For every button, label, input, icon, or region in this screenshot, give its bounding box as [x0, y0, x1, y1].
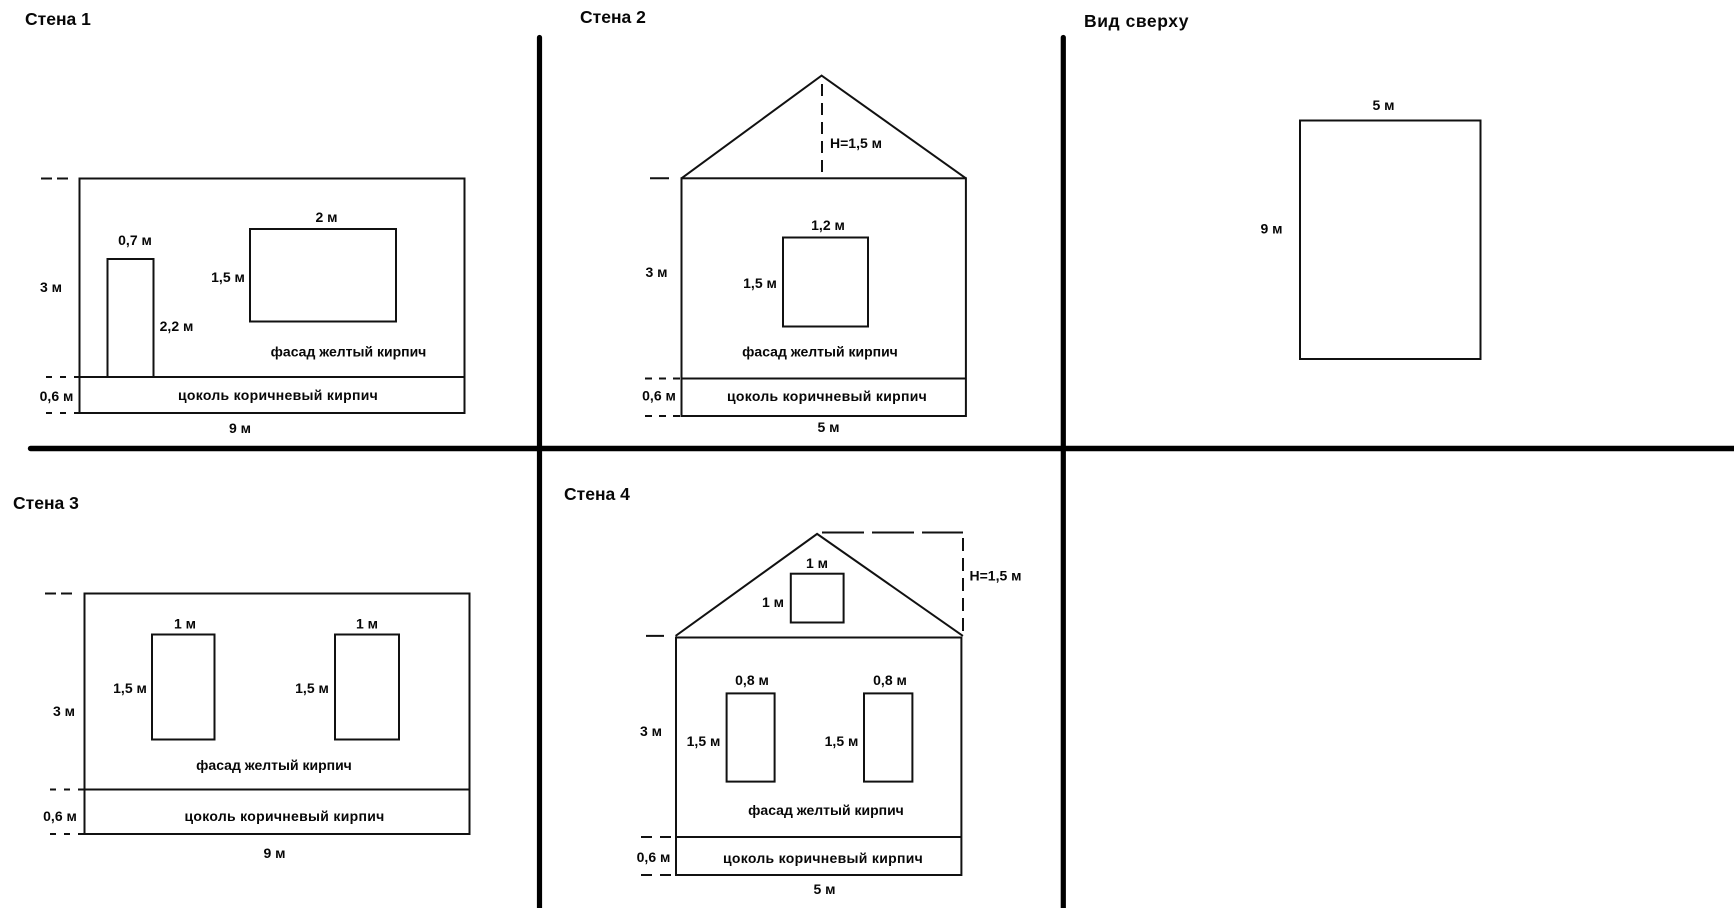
- svg-text:фасад желтый кирпич: фасад желтый кирпич: [748, 802, 904, 818]
- svg-text:цоколь коричневый кирпич: цоколь коричневый кирпич: [723, 850, 923, 866]
- svg-text:цоколь коричневый кирпич: цоколь коричневый кирпич: [178, 387, 378, 403]
- svg-text:Стена 3: Стена 3: [13, 493, 79, 513]
- svg-text:Вид сверху: Вид сверху: [1084, 11, 1189, 31]
- svg-text:1,5 м: 1,5 м: [743, 275, 777, 291]
- svg-text:фасад желтый кирпич: фасад желтый кирпич: [271, 344, 427, 360]
- svg-text:3 м: 3 м: [640, 723, 662, 739]
- svg-text:3 м: 3 м: [40, 279, 62, 295]
- svg-text:0,8 м: 0,8 м: [735, 672, 769, 688]
- svg-text:Стена 1: Стена 1: [25, 9, 91, 29]
- svg-text:5 м: 5 м: [817, 419, 839, 435]
- svg-text:0,6 м: 0,6 м: [637, 849, 671, 865]
- svg-text:фасад желтый кирпич: фасад желтый кирпич: [196, 757, 352, 773]
- svg-text:5 м: 5 м: [1372, 97, 1394, 113]
- svg-text:0,6 м: 0,6 м: [642, 388, 676, 404]
- svg-text:1,5 м: 1,5 м: [211, 269, 245, 285]
- svg-text:1 м: 1 м: [762, 594, 784, 610]
- svg-text:1 м: 1 м: [356, 616, 378, 632]
- svg-text:0,7 м: 0,7 м: [118, 232, 152, 248]
- svg-text:Стена 4: Стена 4: [564, 484, 630, 504]
- svg-text:фасад желтый кирпич: фасад желтый кирпич: [742, 344, 898, 360]
- svg-text:1,5 м: 1,5 м: [825, 733, 859, 749]
- svg-text:2,2 м: 2,2 м: [160, 318, 194, 334]
- svg-text:1 м: 1 м: [174, 616, 196, 632]
- svg-text:1,2 м: 1,2 м: [811, 217, 845, 233]
- svg-text:0,8 м: 0,8 м: [873, 672, 907, 688]
- svg-text:9 м: 9 м: [1260, 221, 1282, 237]
- svg-text:1,5 м: 1,5 м: [295, 680, 329, 696]
- svg-text:1,5 м: 1,5 м: [687, 733, 721, 749]
- svg-text:0,6 м: 0,6 м: [40, 388, 74, 404]
- svg-text:цоколь коричневый кирпич: цоколь коричневый кирпич: [727, 388, 927, 404]
- svg-text:Н=1,5 м: Н=1,5 м: [970, 568, 1022, 584]
- svg-text:цоколь коричневый кирпич: цоколь коричневый кирпич: [184, 808, 384, 824]
- svg-text:Н=1,5 м: Н=1,5 м: [830, 135, 882, 151]
- svg-text:3 м: 3 м: [645, 264, 667, 280]
- svg-text:0,6 м: 0,6 м: [43, 808, 77, 824]
- svg-text:3 м: 3 м: [53, 703, 75, 719]
- svg-text:9 м: 9 м: [263, 845, 285, 861]
- svg-text:5 м: 5 м: [813, 881, 835, 897]
- svg-text:9 м: 9 м: [229, 420, 251, 436]
- svg-text:2 м: 2 м: [315, 209, 337, 225]
- svg-text:1,5 м: 1,5 м: [113, 680, 147, 696]
- svg-text:1 м: 1 м: [806, 555, 828, 571]
- svg-text:Стена 2: Стена 2: [580, 7, 646, 27]
